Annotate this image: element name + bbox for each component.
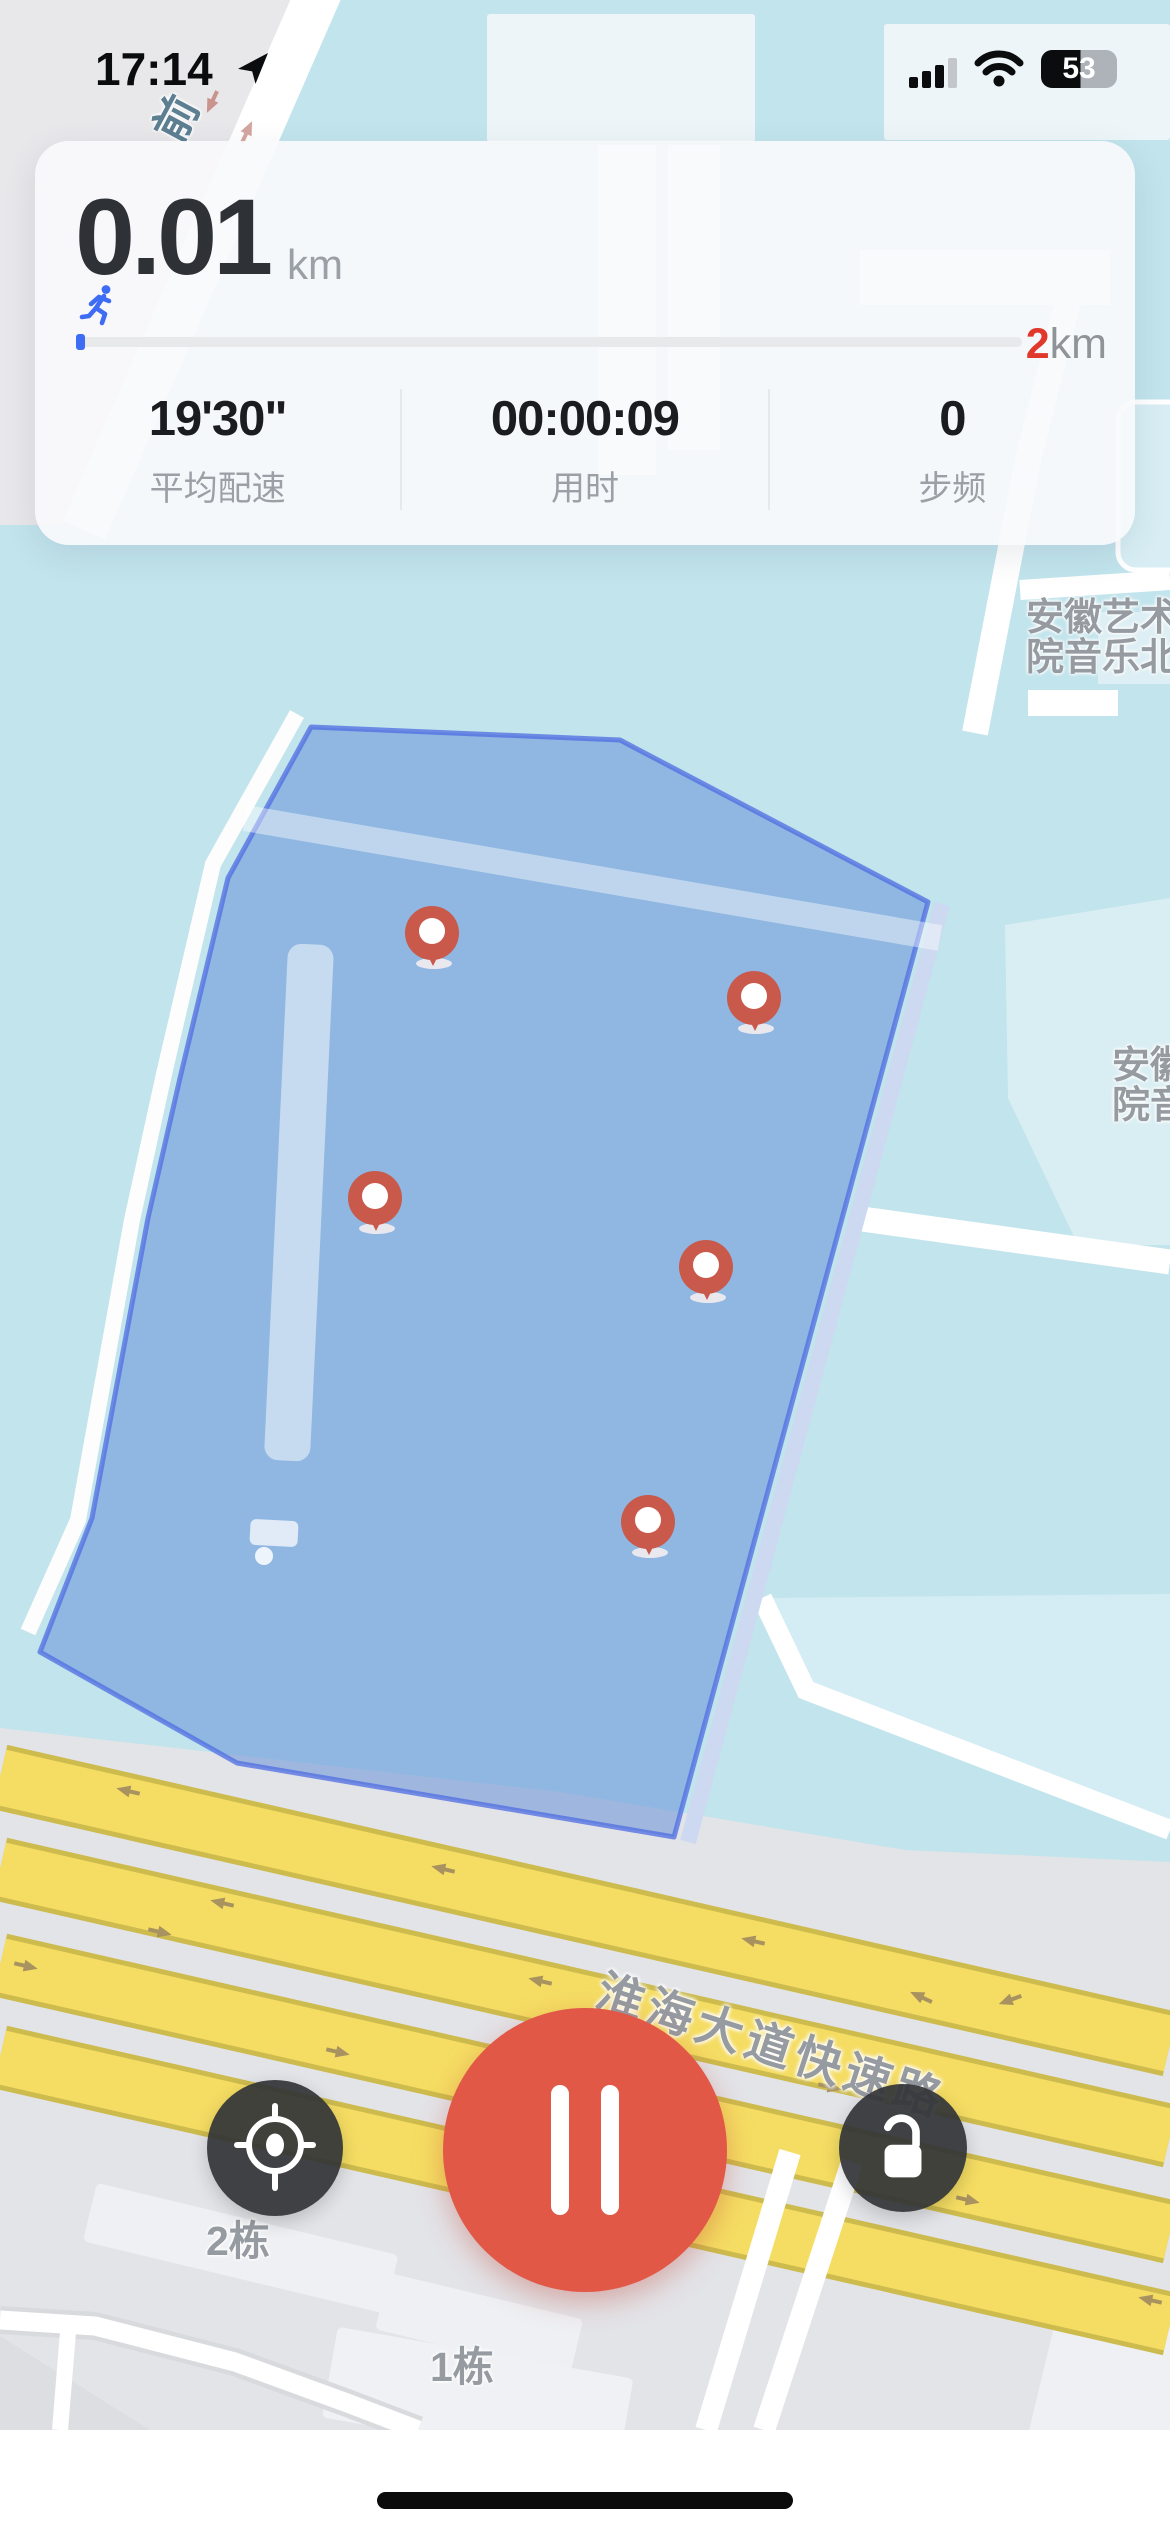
goal-progress-fill <box>76 334 85 350</box>
battery-icon: 53 <box>1041 50 1108 88</box>
pin-hole <box>635 1507 661 1533</box>
map-label-line: 院音乐 <box>1112 1086 1170 1126</box>
metric-value: 19'30" <box>35 393 400 447</box>
map-pin[interactable] <box>405 906 461 982</box>
goal-distance: 2km <box>1026 323 1107 366</box>
distance-unit: km <box>287 241 343 289</box>
goal-value: 2 <box>1026 320 1050 368</box>
battery-body: 53 <box>1041 50 1117 88</box>
lock-screen-button[interactable] <box>839 2084 967 2212</box>
metric-average-pace: 19'30" 平均配速 <box>35 389 400 510</box>
cellular-signal-icon <box>909 58 957 88</box>
map-label-block-1: 1栋 <box>430 2346 494 2389</box>
map-label-line: 院音乐北 <box>1026 638 1170 678</box>
metric-value: 0 <box>770 393 1135 447</box>
pause-icon <box>551 2085 619 2215</box>
map-pin[interactable] <box>621 1495 677 1571</box>
goal-progress-track <box>76 337 1022 347</box>
runner-icon <box>79 283 123 327</box>
map-southeast-area <box>762 1594 1170 1830</box>
signal-bar <box>948 58 957 88</box>
metric-label: 步频 <box>770 461 1135 510</box>
signal-bar <box>922 71 931 88</box>
run-tracking-screen: 安徽艺术 院音乐北 安徽艺 院音乐 淮海大道快速路 2栋 1栋 前 17:14 <box>0 0 1170 2532</box>
pin-body <box>679 1240 733 1294</box>
locate-me-button[interactable] <box>207 2080 343 2216</box>
metric-label: 平均配速 <box>35 461 400 510</box>
metric-value: 00:00:09 <box>402 393 767 447</box>
pin-body <box>348 1171 402 1225</box>
status-bar: 17:14 53 <box>0 0 1170 110</box>
metrics-row: 19'30" 平均配速 00:00:09 用时 0 步频 <box>35 389 1135 510</box>
battery-percent: 53 <box>1062 52 1095 86</box>
wifi-icon <box>974 50 1024 88</box>
map-pin[interactable] <box>348 1171 404 1247</box>
pause-bar <box>601 2085 619 2215</box>
map-pin[interactable] <box>679 1240 735 1316</box>
signal-bar <box>909 77 918 88</box>
pin-hole <box>362 1183 388 1209</box>
pause-run-button[interactable] <box>443 2008 727 2292</box>
pin-hole <box>741 983 767 1009</box>
home-indicator[interactable] <box>377 2492 793 2509</box>
distance-value: 0.01 <box>75 183 269 291</box>
map-label-block-2: 2栋 <box>206 2220 270 2263</box>
map-label-building-northeast: 安徽艺术 院音乐北 <box>1026 598 1170 679</box>
signal-bar <box>935 65 944 88</box>
unlock-icon <box>872 2110 934 2186</box>
map-label-line: 安徽艺术 <box>1026 598 1170 638</box>
locate-icon <box>225 2098 325 2198</box>
metric-label: 用时 <box>402 461 767 510</box>
goal-unit: km <box>1050 320 1107 368</box>
pin-body <box>621 1495 675 1549</box>
map-label-line: 安徽艺 <box>1112 1046 1170 1086</box>
metric-cadence: 0 步频 <box>768 389 1135 510</box>
pin-hole <box>419 918 445 944</box>
pause-bar <box>551 2085 569 2215</box>
pin-body <box>727 971 781 1025</box>
status-time: 17:14 <box>95 42 213 96</box>
map-label-building-east: 安徽艺 院音乐 <box>1112 1046 1170 1127</box>
run-stats-card: 0.01 km 2km 19'30" 平均配速 00:00:09 用时 <box>35 141 1135 545</box>
pin-body <box>405 906 459 960</box>
status-icons: 53 <box>909 50 1108 88</box>
pin-hole <box>693 1252 719 1278</box>
location-active-icon <box>233 48 273 88</box>
metric-elapsed-time: 00:00:09 用时 <box>400 389 767 510</box>
map-pin[interactable] <box>727 971 783 1047</box>
